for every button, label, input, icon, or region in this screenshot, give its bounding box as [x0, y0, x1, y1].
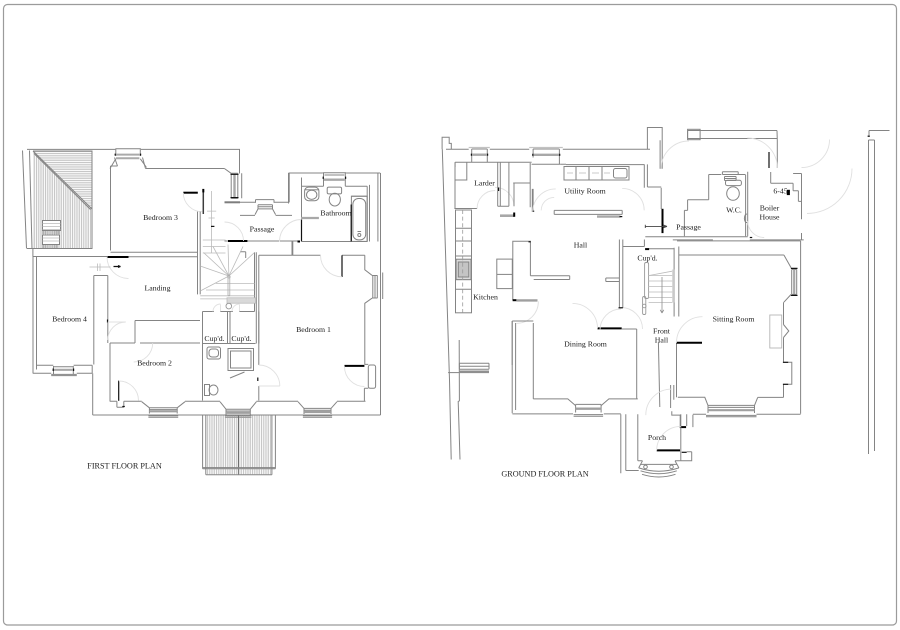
svg-text:Bedroom 1: Bedroom 1 [296, 325, 331, 334]
svg-text:Hall: Hall [655, 336, 669, 345]
svg-text:Cup'd.: Cup'd. [637, 254, 657, 263]
svg-text:Dining Room: Dining Room [564, 340, 607, 349]
svg-text:Landing: Landing [145, 284, 171, 293]
svg-text:Passage: Passage [250, 225, 275, 234]
svg-text:Bedroom 3: Bedroom 3 [143, 213, 178, 222]
svg-text:Front: Front [653, 327, 671, 336]
svg-text:Cup'd.: Cup'd. [231, 334, 251, 343]
svg-text:Kitchen: Kitchen [473, 293, 498, 302]
svg-text:Utility Room: Utility Room [564, 187, 605, 196]
svg-text:6-45: 6-45 [773, 187, 787, 196]
svg-text:Cup'd.: Cup'd. [204, 334, 224, 343]
svg-text:Passage: Passage [676, 223, 701, 232]
svg-text:Bedroom 2: Bedroom 2 [137, 359, 172, 368]
svg-text:GROUND FLOOR PLAN: GROUND FLOOR PLAN [501, 470, 588, 479]
svg-text:Sitting Room: Sitting Room [713, 315, 755, 324]
svg-text:Larder: Larder [474, 179, 495, 188]
svg-text:Bathroom: Bathroom [320, 209, 351, 218]
svg-text:W.C.: W.C. [726, 206, 742, 215]
svg-text:Porch: Porch [648, 433, 666, 442]
svg-text:FIRST FLOOR PLAN: FIRST FLOOR PLAN [87, 462, 162, 471]
svg-text:House: House [760, 213, 780, 222]
svg-text:Boiler: Boiler [760, 204, 780, 213]
svg-text:Hall: Hall [574, 241, 588, 250]
svg-text:Bedroom 4: Bedroom 4 [52, 315, 87, 324]
